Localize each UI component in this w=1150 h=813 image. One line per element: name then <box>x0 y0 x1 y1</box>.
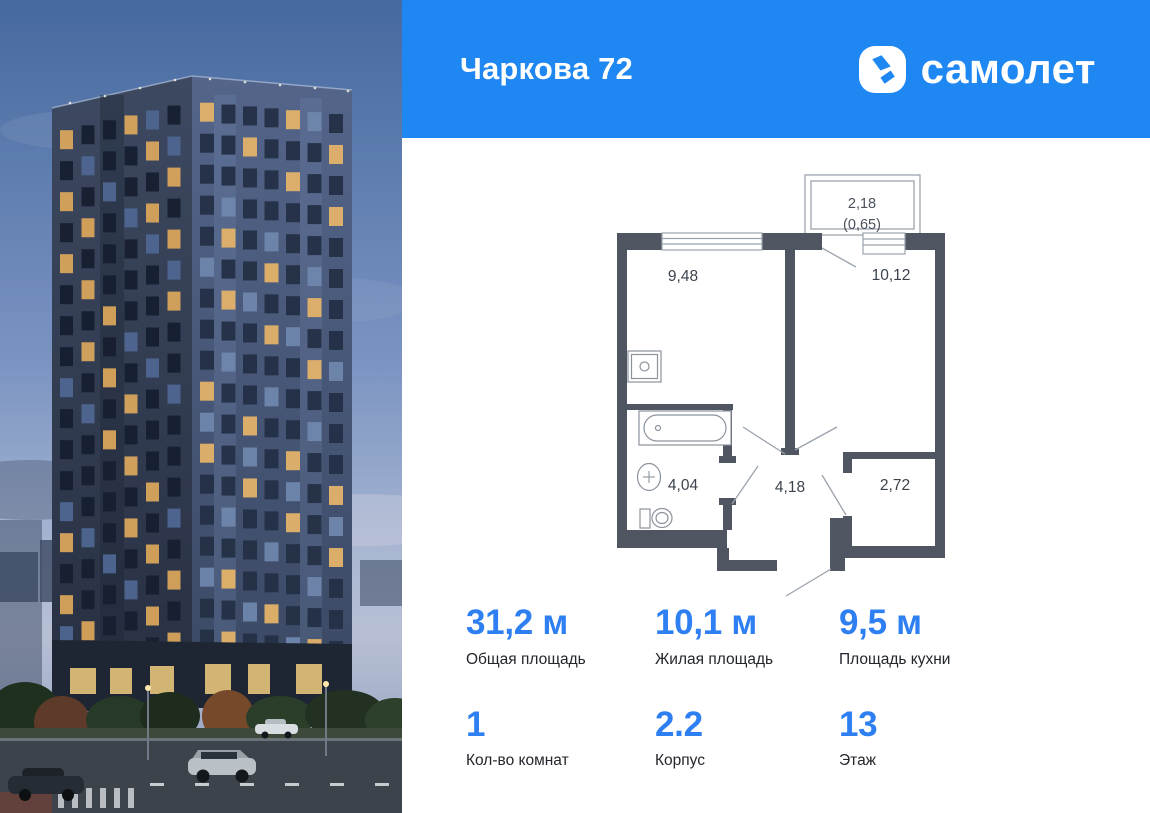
header: Чаркова 72 самолет <box>402 0 1150 138</box>
kitchen-window <box>662 233 762 250</box>
tower <box>52 76 352 712</box>
stat-value: 13 <box>839 706 1059 745</box>
stat-value: 9,5 м <box>839 604 1059 643</box>
samolet-arrow-icon <box>859 46 906 93</box>
stat-label: Площадь кухни <box>839 651 1059 669</box>
wardrobe-area-label: 2,72 <box>880 477 910 494</box>
stat-value: 10,1 м <box>655 604 839 643</box>
stat-label: Общая площадь <box>466 651 655 669</box>
stat-value: 2.2 <box>655 706 839 745</box>
brand-name: самолет <box>921 48 1096 90</box>
stat-value: 31,2 м <box>466 604 655 643</box>
stats-row-details: 1 Кол-во комнат 2.2 Корпус 13 Этаж <box>466 706 1106 771</box>
bathroom-area-label: 4,04 <box>668 477 699 494</box>
stat-living-area: 10,1 м Жилая площадь <box>655 604 839 669</box>
stats-row-areas: 31,2 м Общая площадь 10,1 м Жилая площад… <box>466 604 1106 669</box>
building-photo-art <box>0 0 402 813</box>
stat-label: Кол-во комнат <box>466 752 655 770</box>
living-room-window <box>863 233 905 254</box>
kitchen-area-label: 9,48 <box>668 268 698 285</box>
bathtub-icon <box>639 411 731 445</box>
stat-label: Этаж <box>839 752 1059 770</box>
stat-building: 2.2 Корпус <box>655 706 839 771</box>
kitchen-sink-icon <box>628 351 661 382</box>
brand-logo[interactable]: самолет <box>859 46 1096 93</box>
living-area-label: 10,12 <box>872 267 911 284</box>
stat-rooms: 1 Кол-во комнат <box>466 706 655 771</box>
stat-total-area: 31,2 м Общая площадь <box>466 604 655 669</box>
hallway-area-label: 4,18 <box>775 479 805 496</box>
stat-label: Корпус <box>655 752 839 770</box>
balcony-reduced-area-label: (0,65) <box>843 217 881 233</box>
building-photo <box>0 0 402 813</box>
stat-kitchen-area: 9,5 м Площадь кухни <box>839 604 1059 669</box>
stat-value: 1 <box>466 706 655 745</box>
washbasin-icon <box>638 464 661 491</box>
balcony-area-label: 2,18 <box>848 196 876 212</box>
stat-floor: 13 Этаж <box>839 706 1059 771</box>
info-panel: Чаркова 72 самолет 2,18 (0,65) <box>402 0 1150 813</box>
floorplan: 2,18 (0,65) <box>610 168 950 600</box>
stat-label: Жилая площадь <box>655 651 839 669</box>
page-title: Чаркова 72 <box>460 51 633 87</box>
toilet-icon <box>640 509 672 529</box>
listing-card: Чаркова 72 самолет 2,18 (0,65) <box>0 0 1150 813</box>
stats: 31,2 м Общая площадь 10,1 м Жилая площад… <box>466 604 1106 770</box>
balcony: 2,18 (0,65) <box>805 175 920 235</box>
